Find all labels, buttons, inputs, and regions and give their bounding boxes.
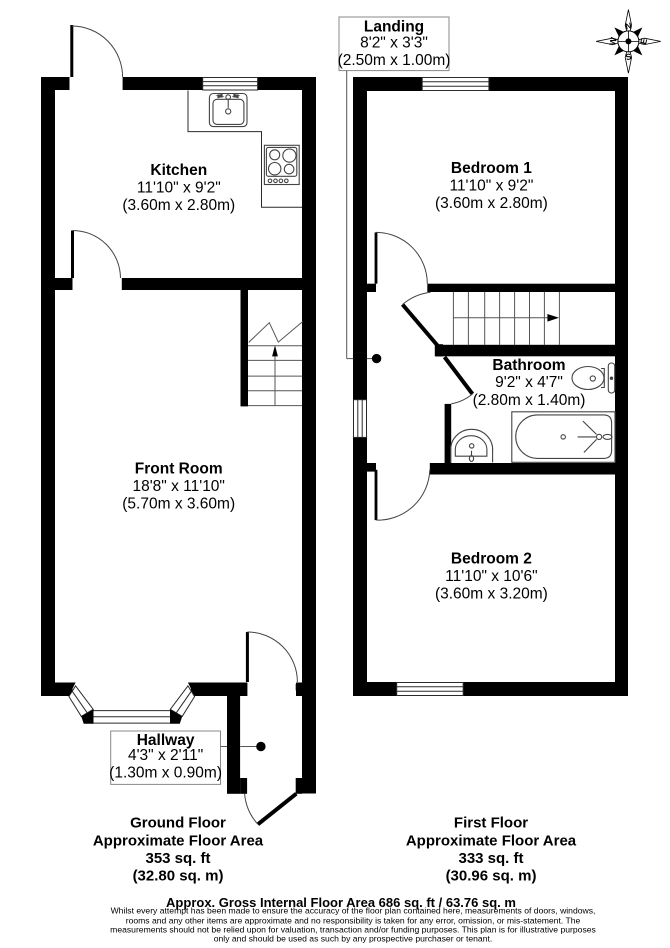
svg-text:Approximate Floor Area: Approximate Floor Area [406,833,577,850]
svg-text:Ground Floor: Ground Floor [130,815,226,832]
svg-text:333 sq. ft: 333 sq. ft [458,850,523,867]
svg-text:Bathroom: Bathroom [492,357,565,374]
svg-text:11'10" x 9'2": 11'10" x 9'2" [137,180,221,197]
svg-text:(1.30m x 0.90m): (1.30m x 0.90m) [109,764,222,781]
svg-text:Whilst every attempt has been: Whilst every attempt has been made to en… [111,905,596,915]
svg-text:Bedroom 1: Bedroom 1 [451,160,532,177]
svg-text:11'10" x 10'6": 11'10" x 10'6" [445,568,537,585]
svg-text:(2.80m x 1.40m): (2.80m x 1.40m) [473,392,586,409]
svg-text:only and should be used as suc: only and should be used as such by any p… [214,934,493,944]
svg-text:18'8" x 11'10": 18'8" x 11'10" [132,478,224,495]
svg-text:Front Room: Front Room [135,461,223,478]
svg-text:(3.60m x 2.80m): (3.60m x 2.80m) [122,197,235,214]
svg-text:Kitchen: Kitchen [150,162,207,179]
svg-text:(32.80 sq. m): (32.80 sq. m) [133,868,224,885]
svg-text:8'2" x 3'3": 8'2" x 3'3" [360,34,428,51]
svg-text:(5.70m x 3.60m): (5.70m x 3.60m) [122,496,235,513]
svg-text:(3.60m x 2.80m): (3.60m x 2.80m) [435,195,548,212]
svg-text:Bedroom 2: Bedroom 2 [451,551,532,568]
svg-text:Landing: Landing [364,19,424,36]
svg-text:11'10" x 9'2": 11'10" x 9'2" [449,178,533,195]
svg-text:353 sq. ft: 353 sq. ft [145,850,210,867]
svg-text:Approximate Floor Area: Approximate Floor Area [93,833,264,850]
svg-text:(2.50m x 1.00m): (2.50m x 1.00m) [338,52,451,69]
svg-text:First Floor: First Floor [454,815,528,832]
svg-text:9'2" x 4'7": 9'2" x 4'7" [495,374,563,391]
svg-text:(30.96 sq. m): (30.96 sq. m) [446,868,537,885]
svg-text:(3.60m x 3.20m): (3.60m x 3.20m) [435,586,548,603]
svg-text:4'3" x 2'11": 4'3" x 2'11" [128,747,203,764]
